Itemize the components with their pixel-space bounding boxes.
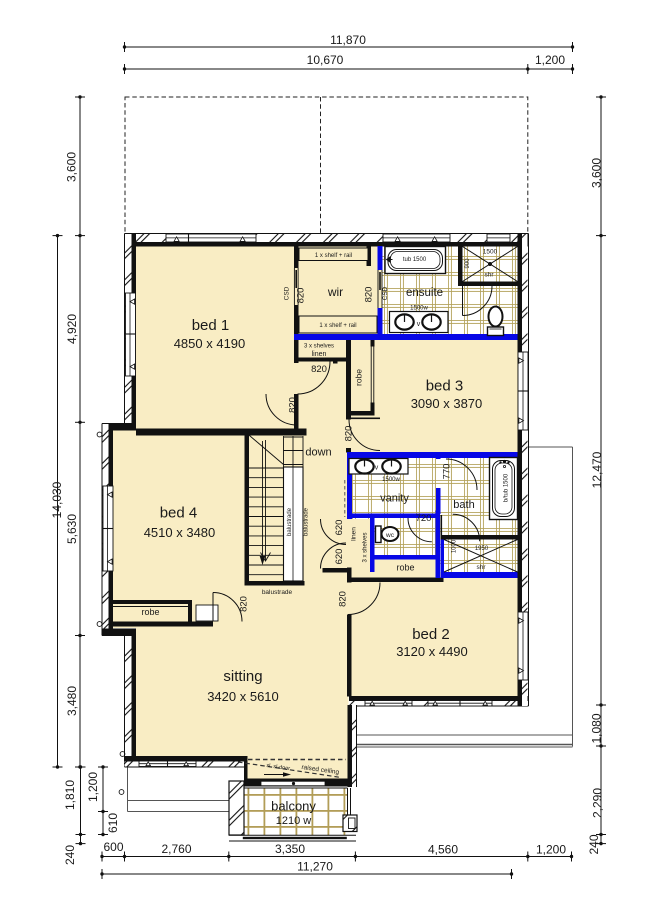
- svg-text:820: 820: [296, 288, 307, 304]
- svg-text:sitting: sitting: [223, 668, 262, 685]
- svg-text:shr: shr: [484, 272, 494, 279]
- svg-text:820: 820: [338, 591, 349, 607]
- svg-text:1000: 1000: [452, 539, 458, 553]
- svg-text:4850 x 4190: 4850 x 4190: [174, 336, 246, 351]
- svg-text:vanity: vanity: [380, 493, 409, 505]
- svg-text:balustrade: balustrade: [304, 507, 310, 536]
- svg-text:balustrade: balustrade: [287, 507, 293, 536]
- svg-text:1500: 1500: [483, 249, 498, 256]
- svg-text:CSD: CSD: [284, 286, 291, 300]
- svg-text:2,290: 2,290: [591, 788, 605, 818]
- svg-text:1,200: 1,200: [535, 53, 565, 67]
- svg-text:1,080: 1,080: [590, 713, 604, 743]
- svg-text:11,270: 11,270: [297, 860, 333, 874]
- svg-text:610: 610: [106, 813, 120, 833]
- svg-text:240: 240: [587, 834, 601, 854]
- svg-text:1950: 1950: [475, 546, 489, 552]
- svg-text:robe: robe: [354, 369, 364, 386]
- svg-text:1 x shelf + rail: 1 x shelf + rail: [319, 323, 356, 329]
- svg-text:10,670: 10,670: [307, 53, 344, 67]
- svg-text:240: 240: [63, 845, 77, 865]
- svg-text:1,200: 1,200: [536, 843, 566, 857]
- svg-text:3,350: 3,350: [275, 842, 305, 856]
- svg-text:b/tub 1500: b/tub 1500: [504, 473, 510, 502]
- svg-text:CSD: CSD: [382, 286, 389, 300]
- svg-text:3090 x 3870: 3090 x 3870: [411, 396, 483, 411]
- svg-text:tub 1500: tub 1500: [403, 257, 427, 263]
- svg-text:3 x shelves: 3 x shelves: [304, 344, 334, 350]
- svg-text:wir: wir: [327, 285, 343, 299]
- svg-text:linen: linen: [312, 351, 327, 358]
- svg-text:620: 620: [334, 549, 345, 565]
- svg-text:ensuite: ensuite: [406, 287, 443, 299]
- svg-text:1210 w: 1210 w: [276, 815, 312, 827]
- svg-text:bed 4: bed 4: [160, 505, 198, 522]
- svg-text:bed 3: bed 3: [426, 378, 464, 395]
- svg-text:11,870: 11,870: [330, 33, 366, 47]
- svg-text:1500w: 1500w: [410, 306, 428, 312]
- svg-text:1 x shelf + rail: 1 x shelf + rail: [315, 253, 352, 259]
- svg-text:3420 x 5610: 3420 x 5610: [207, 689, 279, 704]
- svg-text:12,470: 12,470: [590, 451, 604, 488]
- svg-text:3,600: 3,600: [65, 152, 79, 182]
- svg-text:1,810: 1,810: [63, 780, 77, 810]
- svg-text:600: 600: [103, 840, 123, 854]
- svg-text:bed 2: bed 2: [412, 626, 450, 643]
- svg-text:3,480: 3,480: [65, 686, 79, 716]
- svg-text:bed 1: bed 1: [192, 317, 230, 334]
- svg-text:620: 620: [334, 520, 345, 536]
- svg-text:820: 820: [239, 596, 250, 612]
- svg-text:balcony: balcony: [271, 799, 316, 814]
- svg-text:4510 x 3480: 4510 x 3480: [144, 525, 216, 540]
- svg-text:2,760: 2,760: [161, 842, 191, 856]
- svg-text:linen: linen: [351, 527, 358, 541]
- svg-text:820: 820: [311, 364, 327, 375]
- svg-text:820: 820: [364, 287, 375, 303]
- svg-text:down: down: [305, 447, 331, 459]
- svg-text:3 x shelves: 3 x shelves: [363, 532, 369, 562]
- svg-text:robe: robe: [396, 563, 414, 573]
- svg-text:900: 900: [465, 258, 471, 269]
- svg-text:820: 820: [288, 397, 299, 413]
- svg-text:3120 x 4490: 3120 x 4490: [396, 644, 468, 659]
- svg-text:shr: shr: [476, 564, 486, 571]
- svg-text:5,630: 5,630: [65, 514, 79, 544]
- svg-text:robe: robe: [141, 607, 159, 617]
- svg-text:3,600: 3,600: [590, 158, 604, 188]
- svg-text:1,200: 1,200: [86, 772, 100, 802]
- svg-text:4,560: 4,560: [428, 843, 458, 857]
- svg-text:770: 770: [442, 464, 453, 480]
- svg-text:1500w: 1500w: [382, 477, 400, 483]
- svg-text:14,030: 14,030: [50, 481, 64, 518]
- svg-text:wc: wc: [385, 532, 395, 539]
- svg-text:4,920: 4,920: [65, 314, 79, 344]
- svg-text:bath: bath: [453, 499, 474, 511]
- svg-text:720: 720: [416, 513, 432, 524]
- svg-text:820: 820: [344, 426, 355, 442]
- svg-text:v: v: [417, 321, 421, 328]
- svg-text:v: v: [375, 465, 379, 472]
- svg-text:balustrade: balustrade: [262, 589, 293, 596]
